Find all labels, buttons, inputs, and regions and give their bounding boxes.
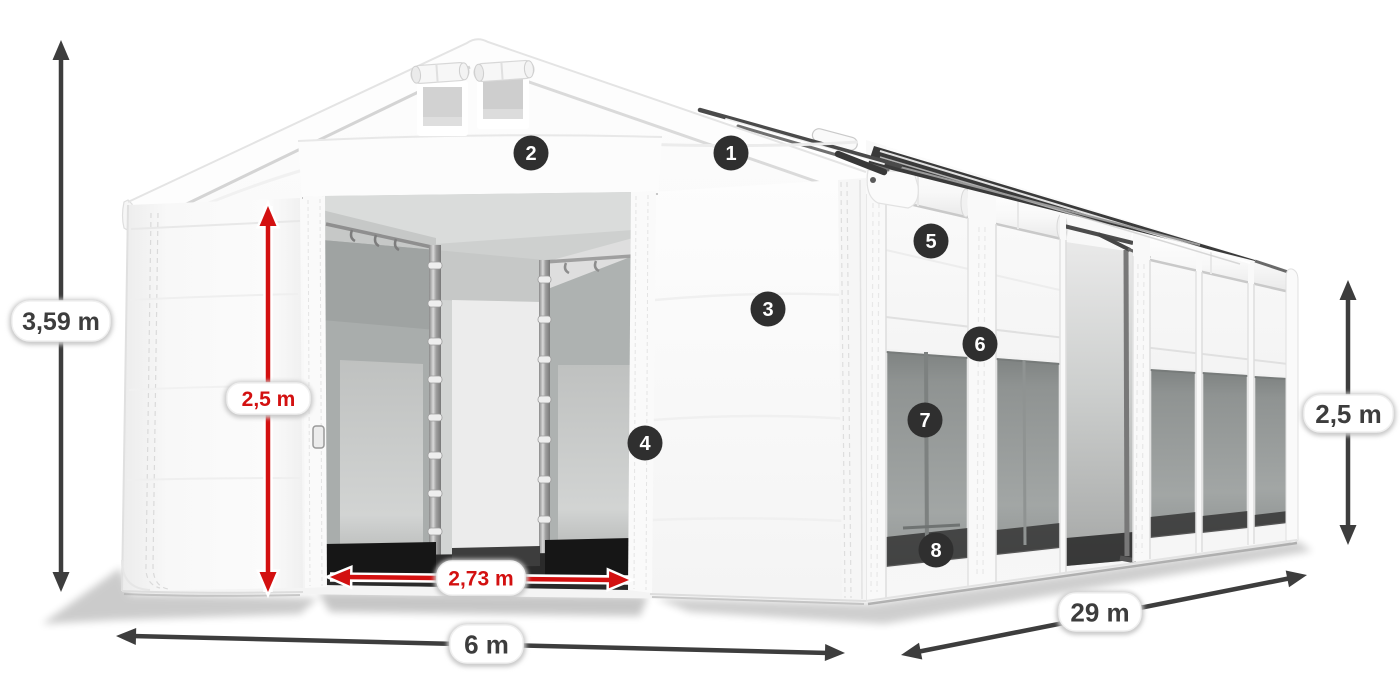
svg-text:8: 8 (930, 540, 941, 562)
svg-text:3: 3 (762, 299, 773, 321)
svg-text:29 m: 29 m (1070, 597, 1129, 627)
svg-text:6 m: 6 m (464, 629, 509, 659)
svg-text:5: 5 (925, 231, 936, 253)
svg-text:7: 7 (919, 410, 930, 432)
svg-text:4: 4 (639, 433, 651, 455)
svg-text:2,73 m: 2,73 m (448, 568, 513, 591)
svg-text:3,59 m: 3,59 m (22, 308, 100, 336)
svg-text:2: 2 (525, 143, 536, 165)
svg-text:1: 1 (725, 143, 736, 165)
svg-text:2,5 m: 2,5 m (242, 388, 296, 411)
svg-text:6: 6 (974, 334, 985, 356)
svg-text:2,5 m: 2,5 m (1315, 399, 1382, 429)
